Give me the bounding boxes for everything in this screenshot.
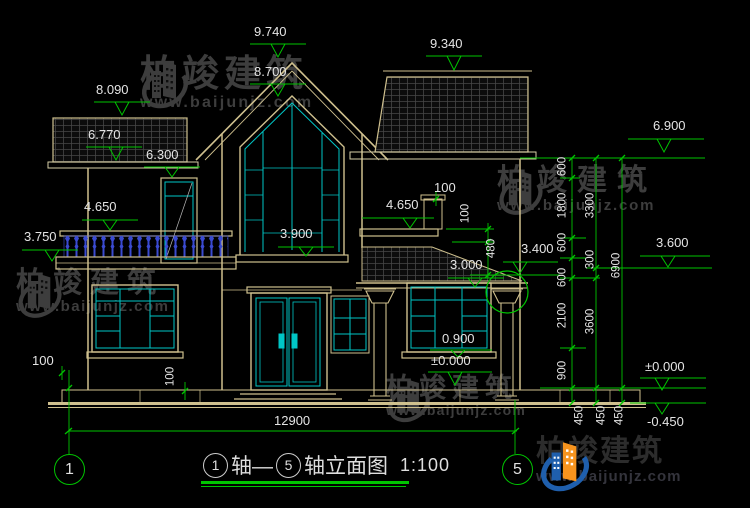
level-porch-eave: 3.000 (450, 258, 483, 272)
level-floor-right: ±0.000 (645, 360, 685, 374)
door-handle (292, 334, 297, 348)
level-porch-top: 3.400 (521, 242, 554, 256)
title-axis-end: 5 (276, 453, 301, 478)
level-left-eave: 6.770 (88, 128, 121, 142)
dim-100-chimney: 100 (434, 181, 456, 195)
door-side-window (331, 296, 369, 353)
dim-100-plinth: 100 (165, 359, 178, 395)
level-gable-window-top: 8.700 (254, 65, 287, 79)
chain3-6900: 6900 (611, 248, 624, 284)
chain1-900: 900 (557, 353, 570, 389)
level-gable-sill: 3.900 (280, 227, 313, 241)
front-door (234, 287, 342, 399)
total-width-dimension (65, 370, 519, 454)
chain1-600b: 600 (557, 225, 570, 261)
small-dimensions (59, 191, 560, 400)
chain1-450: 450 (574, 398, 587, 434)
title-underline-thin (201, 486, 406, 487)
dim-480: 480 (486, 231, 499, 267)
chimney (421, 195, 445, 229)
ground-line (48, 404, 646, 408)
level-right-eave: 6.900 (653, 119, 686, 133)
level-right-roof: 9.340 (430, 37, 463, 51)
brand-logo-footer: 柏竣建筑 www.baijunjz.com (536, 436, 681, 485)
level-window-sill: 0.900 (442, 332, 475, 346)
right-roof (350, 71, 536, 159)
balcony (56, 231, 236, 269)
door-handle (279, 334, 284, 348)
level-door2-top: 6.300 (146, 148, 179, 162)
plinth (62, 390, 640, 403)
level-floor: ±0.000 (431, 354, 471, 368)
cad-canvas: 柏竣建筑 www.baijunjz.com 柏竣建筑 www.baijunjz.… (0, 0, 750, 508)
title-suffix: 轴立面图 (304, 450, 388, 480)
axis-bubble-5: 5 (502, 454, 533, 485)
dim-total-width: 12900 (274, 414, 310, 428)
level-right-ledge: 4.650 (386, 198, 419, 212)
chain2-3600: 3600 (585, 304, 598, 340)
door-steps (234, 394, 342, 399)
chain1-1800: 1800 (557, 188, 570, 224)
brand-logo-icon (536, 436, 594, 500)
level-ground: -0.450 (647, 415, 684, 429)
title-axis-start: 1 (203, 453, 228, 478)
floor1-right-window (402, 283, 496, 358)
chain2-450: 450 (596, 398, 609, 434)
elevation-drawing (0, 0, 750, 508)
title-connector: 轴— (231, 450, 273, 480)
axis-bubble-1: 1 (54, 454, 85, 485)
level-balcony-rail: 4.650 (84, 200, 117, 214)
drawing-title: 1轴—5轴立面图1:100 (200, 450, 450, 480)
porch-column-right (491, 289, 523, 404)
level-3600: 3.600 (656, 236, 689, 250)
title-scale: 1:100 (400, 455, 450, 476)
dim-100-axis: 100 (32, 354, 54, 368)
level-balcony-slab: 3.750 (24, 230, 57, 244)
chain1-600a: 600 (557, 149, 570, 185)
chain1-600c: 600 (557, 260, 570, 296)
title-underline (201, 481, 409, 484)
chain3-450: 450 (614, 398, 627, 434)
chain2-300: 300 (585, 242, 598, 278)
floor1-left-window (87, 285, 183, 358)
porch-roof (356, 247, 528, 288)
level-left-roof: 8.090 (96, 83, 129, 97)
level-peak: 9.740 (254, 25, 287, 39)
balcony-railing (64, 236, 228, 257)
dim-100-ledge: 100 (460, 196, 473, 232)
chain1-2100: 2100 (557, 298, 570, 334)
right-ledge (360, 229, 438, 236)
chain2-3300: 3300 (585, 188, 598, 224)
